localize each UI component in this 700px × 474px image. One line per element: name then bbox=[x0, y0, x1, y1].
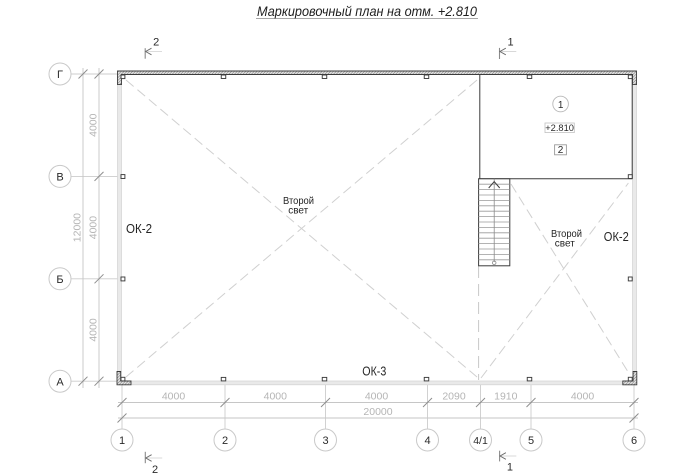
svg-text:1910: 1910 bbox=[494, 391, 518, 403]
svg-text:4000: 4000 bbox=[88, 318, 100, 342]
svg-text:4: 4 bbox=[424, 435, 430, 447]
svg-text:ОК-2: ОК-2 bbox=[604, 229, 629, 244]
svg-text:6: 6 bbox=[631, 435, 637, 447]
svg-text:3: 3 bbox=[322, 435, 328, 447]
svg-text:4000: 4000 bbox=[88, 113, 100, 137]
svg-text:свет: свет bbox=[288, 205, 308, 216]
svg-text:2: 2 bbox=[153, 37, 159, 49]
svg-text:2090: 2090 bbox=[442, 391, 466, 403]
svg-text:1: 1 bbox=[119, 435, 125, 447]
svg-text:свет: свет bbox=[555, 239, 575, 250]
svg-text:5: 5 bbox=[528, 435, 534, 447]
svg-text:12000: 12000 bbox=[72, 213, 84, 242]
svg-text:4000: 4000 bbox=[365, 391, 389, 403]
svg-text:В: В bbox=[56, 172, 63, 184]
svg-text:+2.810: +2.810 bbox=[545, 123, 574, 133]
svg-text:1: 1 bbox=[507, 461, 513, 473]
svg-text:4000: 4000 bbox=[571, 391, 595, 403]
svg-text:А: А bbox=[56, 376, 64, 388]
svg-text:Б: Б bbox=[56, 274, 63, 286]
svg-text:4000: 4000 bbox=[162, 391, 186, 403]
svg-text:Маркировочный план на отм. +2.: Маркировочный план на отм. +2.810 bbox=[257, 3, 477, 19]
svg-text:20000: 20000 bbox=[363, 406, 392, 418]
svg-text:1: 1 bbox=[508, 36, 514, 48]
svg-text:2: 2 bbox=[152, 464, 158, 474]
svg-text:4000: 4000 bbox=[88, 216, 100, 240]
svg-text:ОК-3: ОК-3 bbox=[362, 364, 386, 378]
svg-text:2: 2 bbox=[222, 435, 228, 447]
svg-text:4000: 4000 bbox=[264, 391, 288, 403]
svg-text:ОК-2: ОК-2 bbox=[126, 221, 152, 236]
svg-text:Г: Г bbox=[57, 69, 63, 81]
svg-text:4/1: 4/1 bbox=[473, 435, 488, 447]
svg-text:1: 1 bbox=[558, 100, 564, 111]
svg-text:2: 2 bbox=[558, 145, 564, 156]
